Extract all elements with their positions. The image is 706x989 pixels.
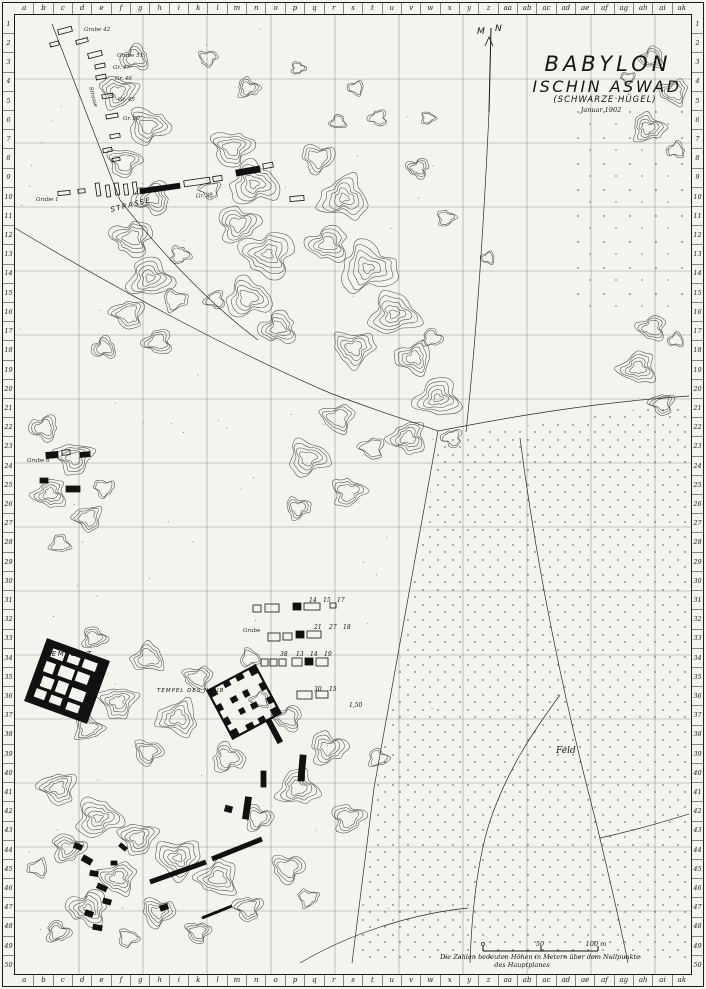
grid-row-label: 6 [692,110,703,129]
grid-row-label: 45 [3,859,14,878]
grid-row-label: 14 [692,264,703,283]
grid-row-label: 48 [3,917,14,936]
grid-col-label: ab [517,975,536,986]
grid-row-label: 37 [3,705,14,724]
grid-row-label: 27 [692,513,703,532]
grid-col-label: n [246,975,265,986]
grid-row-label: 44 [692,840,703,859]
grid-row-label: 7 [3,129,14,148]
grid-row-label: 19 [3,360,14,379]
grid-col-label: g [130,3,149,14]
grid-row-label: 46 [3,878,14,897]
grid-row-label: 27 [3,513,14,532]
grid-row-label: 40 [3,763,14,782]
grid-row-label: 38 [692,725,703,744]
grid-band-top: abcdefghiklmnopqrstuvwxyzaaabacadaeafaga… [15,3,691,14]
grid-col-label: ak [672,975,691,986]
grid-col-label: o [265,975,284,986]
grid-row-label: 12 [692,225,703,244]
grid-col-label: ah [633,3,652,14]
grid-col-label: n [246,3,265,14]
grid-row-label: 25 [3,475,14,494]
grid-col-label: o [265,3,284,14]
grid-row-label: 17 [692,321,703,340]
grid-col-label: ag [614,3,633,14]
grid-col-label: ai [652,975,671,986]
grid-col-label: ae [575,975,594,986]
grid-row-label: 43 [692,821,703,840]
grid-col-label: f [111,3,130,14]
grid-col-label: h [149,975,168,986]
grid-row-label: 11 [692,206,703,225]
grid-col-label: y [459,3,478,14]
grid-col-label: u [382,3,401,14]
grid-row-label: 11 [3,206,14,225]
grid-col-label: r [324,975,343,986]
grid-row-label: 49 [692,936,703,955]
grid-col-label: d [72,3,91,14]
grid-col-label: w [420,975,439,986]
grid-row-label: 34 [3,648,14,667]
grid-row-label: 18 [3,340,14,359]
grid-row-label: 8 [3,148,14,167]
grid-col-label: e [91,975,110,986]
grid-row-label: 22 [3,417,14,436]
grid-row-label: 19 [692,360,703,379]
grid-row-label: 9 [3,168,14,187]
grid-row-label: 30 [692,571,703,590]
grid-row-label: 12 [3,225,14,244]
grid-band-right: 1234567891011121314151617181920212223242… [692,15,703,974]
grid-row-label: 49 [3,936,14,955]
grid-col-label: ah [633,975,652,986]
grid-col-label: t [362,975,381,986]
grid-row-label: 21 [692,398,703,417]
grid-row-label: 18 [692,340,703,359]
grid-row-label: 9 [692,168,703,187]
grid-col-label: p [285,3,304,14]
grid-row-label: 13 [692,244,703,263]
grid-col-label: k [188,3,207,14]
grid-row-label: 14 [3,264,14,283]
grid-band-bottom: abcdefghiklmnopqrstuvwxyzaaabacadaeafaga… [15,975,691,986]
grid-col-label: y [459,975,478,986]
grid-row-label: 44 [3,840,14,859]
grid-col-label: aa [498,3,517,14]
grid-row-label: 36 [3,686,14,705]
grid-col-label: b [33,3,52,14]
grid-row-label: 31 [3,590,14,609]
grid-col-label: c [53,3,72,14]
grid-col-label: aa [498,975,517,986]
grid-row-label: 4 [3,72,14,91]
grid-col-label: af [594,975,613,986]
grid-row-label: 41 [692,782,703,801]
grid-col-label: q [304,3,323,14]
grid-row-label: 47 [3,897,14,916]
grid-row-label: 22 [692,417,703,436]
grid-col-label: d [72,975,91,986]
grid-col-label: a [15,975,33,986]
grid-col-label: x [440,975,459,986]
grid-row-label: 42 [692,801,703,820]
grid-row-label: 35 [3,667,14,686]
grid-row-label: 41 [3,782,14,801]
grid-col-label: u [382,975,401,986]
grid-col-label: q [304,975,323,986]
grid-col-label: ae [575,3,594,14]
grid-row-label: 35 [692,667,703,686]
grid-row-label: 26 [3,494,14,513]
grid-row-label: 7 [692,129,703,148]
grid-col-label: ab [517,3,536,14]
grid-col-label: ak [672,3,691,14]
grid-col-label: g [130,975,149,986]
grid-col-label: a [15,3,33,14]
grid-col-label: b [33,975,52,986]
grid-row-label: 30 [3,571,14,590]
grid-band-left: 1234567891011121314151617181920212223242… [3,15,14,974]
grid-col-label: af [594,3,613,14]
grid-row-label: 10 [3,187,14,206]
map-artwork [0,0,706,989]
grid-col-label: m [227,975,246,986]
grid-row-label: 25 [692,475,703,494]
grid-row-label: 26 [692,494,703,513]
map-sheet: BABYLON ISCHIN ASWAD (SCHWARZE HÜGEL) Ja… [0,0,706,989]
grid-row-label: 24 [3,456,14,475]
grid-col-label: m [227,3,246,14]
grid-col-label: x [440,3,459,14]
grid-row-label: 1 [692,15,703,33]
grid-row-label: 40 [692,763,703,782]
grid-col-label: z [478,975,497,986]
grid-col-label: s [343,3,362,14]
grid-row-label: 5 [692,91,703,110]
grid-row-label: 36 [692,686,703,705]
grid-row-label: 21 [3,398,14,417]
grid-col-label: s [343,975,362,986]
grid-row-label: 46 [692,878,703,897]
grid-row-label: 28 [692,532,703,551]
grid-row-label: 13 [3,244,14,263]
grid-row-label: 48 [692,917,703,936]
grid-row-label: 29 [3,552,14,571]
grid-col-label: v [401,3,420,14]
grid-col-label: ad [556,3,575,14]
grid-row-label: 4 [692,72,703,91]
grid-row-label: 32 [3,609,14,628]
grid-col-label: l [207,975,226,986]
grid-row-label: 2 [3,33,14,52]
grid-col-label: p [285,975,304,986]
grid-row-label: 1 [3,15,14,33]
grid-col-label: l [207,3,226,14]
grid-row-label: 2 [692,33,703,52]
grid-row-label: 37 [692,705,703,724]
grid-row-label: 10 [692,187,703,206]
grid-col-label: f [111,975,130,986]
grid-col-label: h [149,3,168,14]
grid-row-label: 47 [692,897,703,916]
grid-row-label: 15 [3,283,14,302]
grid-col-label: k [188,975,207,986]
grid-row-label: 20 [3,379,14,398]
grid-row-label: 3 [3,52,14,71]
grid-col-label: v [401,975,420,986]
grid-col-label: r [324,3,343,14]
grid-row-label: 17 [3,321,14,340]
grid-row-label: 6 [3,110,14,129]
grid-col-label: ai [652,3,671,14]
grid-row-label: 34 [692,648,703,667]
grid-col-label: w [420,3,439,14]
grid-row-label: 50 [692,955,703,974]
grid-row-label: 39 [3,744,14,763]
grid-row-label: 45 [692,859,703,878]
grid-row-label: 50 [3,955,14,974]
grid-row-label: 29 [692,552,703,571]
grid-row-label: 16 [692,302,703,321]
grid-row-label: 39 [692,744,703,763]
grid-col-label: c [53,975,72,986]
grid-col-label: t [362,3,381,14]
grid-row-label: 15 [692,283,703,302]
grid-col-label: i [169,975,188,986]
grid-col-label: ag [614,975,633,986]
grid-col-label: ac [536,3,555,14]
grid-row-label: 23 [3,436,14,455]
grid-col-label: ac [536,975,555,986]
grid-col-label: z [478,3,497,14]
grid-row-label: 16 [3,302,14,321]
grid-col-label: ad [556,975,575,986]
grid-row-label: 24 [692,456,703,475]
grid-row-label: 20 [692,379,703,398]
grid-row-label: 8 [692,148,703,167]
grid-row-label: 42 [3,801,14,820]
grid-col-label: i [169,3,188,14]
grid-row-label: 23 [692,436,703,455]
grid-row-label: 5 [3,91,14,110]
grid-row-label: 32 [692,609,703,628]
grid-row-label: 33 [692,629,703,648]
grid-row-label: 28 [3,532,14,551]
grid-row-label: 33 [3,629,14,648]
grid-row-label: 3 [692,52,703,71]
grid-row-label: 31 [692,590,703,609]
grid-col-label: e [91,3,110,14]
grid-row-label: 43 [3,821,14,840]
grid-row-label: 38 [3,725,14,744]
